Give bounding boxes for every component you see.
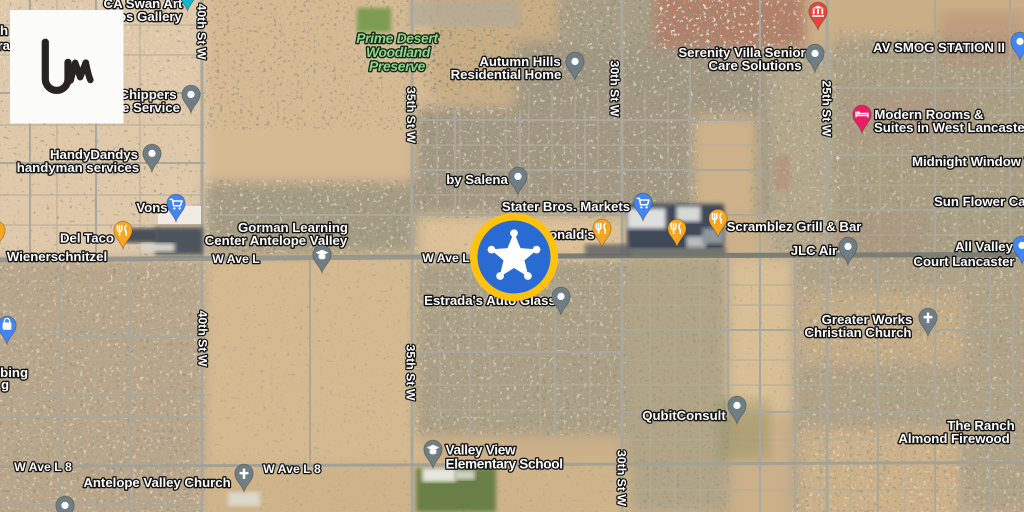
svg-text:handyman services: handyman services — [17, 160, 139, 175]
svg-text:AV SMOG STATION II: AV SMOG STATION II — [873, 40, 1005, 55]
svg-text:30th St W: 30th St W — [615, 450, 629, 506]
svg-text:Sun Flower Caf: Sun Flower Caf — [934, 194, 1024, 209]
svg-text:40th St W: 40th St W — [196, 310, 210, 366]
svg-text:Residential Home: Residential Home — [451, 67, 562, 82]
svg-text:Preserve: Preserve — [369, 59, 426, 74]
svg-text:Wienerschnitzel: Wienerschnitzel — [7, 249, 107, 264]
svg-text:Care Solutions: Care Solutions — [708, 58, 801, 73]
svg-text:Elementary School: Elementary School — [446, 457, 563, 472]
svg-text:W Ave L 8: W Ave L 8 — [263, 462, 321, 476]
svg-text:Court Lancaster: Court Lancaster — [913, 254, 1014, 269]
svg-text:35th St W: 35th St W — [404, 344, 418, 400]
svg-text:Vons: Vons — [136, 200, 167, 215]
svg-text:ra: ra — [0, 38, 11, 53]
svg-text:35th St W: 35th St W — [404, 87, 418, 143]
svg-text:h: h — [0, 23, 8, 38]
svg-text:Suites in West Lancaster: Suites in West Lancaster — [874, 120, 1024, 135]
svg-text:All Valley: All Valley — [955, 239, 1014, 254]
svg-text:Prime Desert: Prime Desert — [356, 31, 439, 46]
svg-text:W Ave L 8: W Ave L 8 — [14, 460, 72, 474]
svg-text:JLC Air: JLC Air — [791, 243, 837, 258]
svg-text:Christian Church: Christian Church — [805, 325, 912, 340]
svg-text:Valley View: Valley View — [446, 443, 516, 458]
svg-text:QubitConsult: QubitConsult — [642, 408, 726, 423]
svg-text:g: g — [1, 377, 9, 392]
svg-text:Estrada's Auto Glass: Estrada's Auto Glass — [424, 293, 556, 308]
svg-text:Stater Bros. Markets: Stater Bros. Markets — [502, 199, 630, 214]
svg-text:Antelope Valley Church: Antelope Valley Church — [83, 475, 230, 490]
svg-text:os Gallery: os Gallery — [118, 9, 182, 24]
svg-text:Midnight Window Ti: Midnight Window Ti — [912, 154, 1024, 169]
svg-text:Center Antelope Valley: Center Antelope Valley — [205, 233, 348, 248]
svg-text:e Service: e Service — [122, 100, 180, 115]
svg-text:Del Taco: Del Taco — [60, 231, 114, 246]
svg-text:Woodland: Woodland — [366, 45, 431, 60]
svg-text:Scramblez Grill & Bar: Scramblez Grill & Bar — [727, 219, 862, 234]
svg-text:by Salena: by Salena — [446, 172, 508, 187]
svg-text:W Ave L: W Ave L — [422, 251, 470, 265]
svg-text:W Ave L: W Ave L — [212, 252, 260, 266]
svg-text:40th St W: 40th St W — [195, 3, 209, 59]
svg-text:30th St W: 30th St W — [608, 60, 622, 116]
svg-text:25th St W: 25th St W — [820, 80, 834, 136]
svg-text:Almond Firewood: Almond Firewood — [898, 431, 1009, 446]
